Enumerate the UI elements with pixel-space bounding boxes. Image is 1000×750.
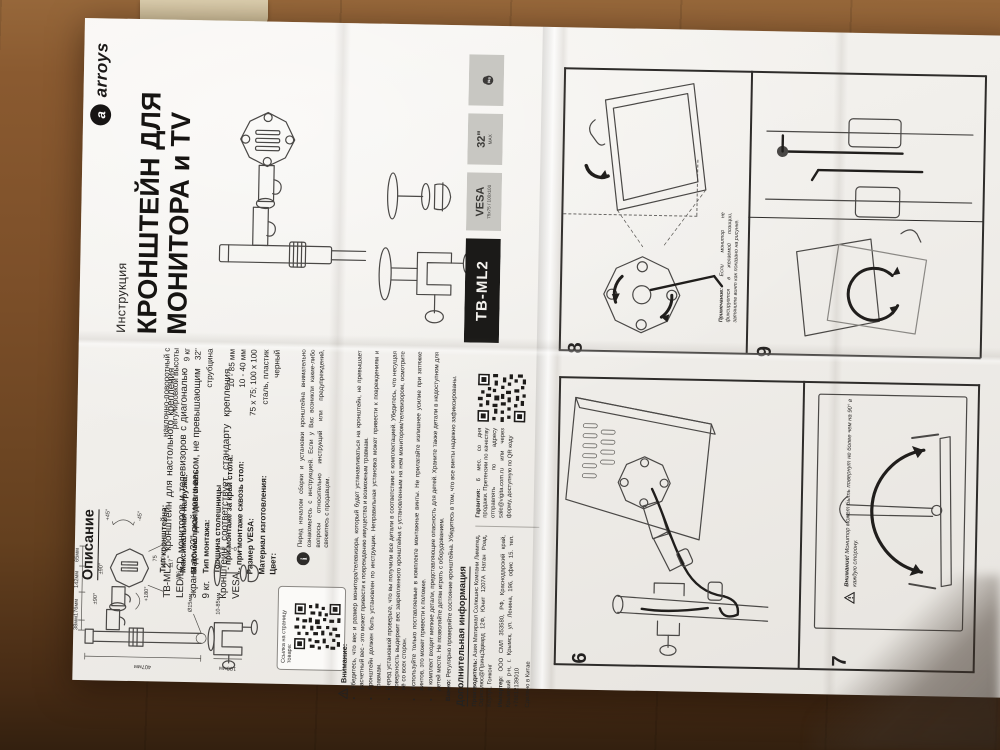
warnings-heading: Внимание: [339, 644, 349, 684]
assembly-note-text: Перед началом сборки и установки кронште… [297, 349, 343, 548]
svg-text:65мм: 65мм [75, 548, 81, 562]
step-9-illustration [749, 73, 986, 355]
svg-text:117: 117 [168, 559, 174, 568]
product-qr-box: Ссылка на страницу товара: [277, 586, 347, 671]
svg-text:407мм: 407мм [134, 663, 151, 669]
spec-value: сталь, пластик [259, 348, 270, 443]
spec-value: 10 - 40 мм [237, 348, 248, 443]
brand-wordmark: arroys [91, 42, 112, 97]
weight-badge: 9kg [468, 54, 504, 106]
svg-text:10-40мм: 10-40мм [218, 545, 240, 551]
svg-text:+45°: +45° [105, 509, 111, 521]
size-badge: 32" MAX [467, 113, 503, 165]
svg-text:+180°: +180° [144, 586, 150, 601]
svg-text:100: 100 [161, 556, 167, 565]
svg-text:142мм: 142мм [74, 571, 80, 588]
page-title: КРОНШТЕЙН ДЛЯ МОНИТОРА и TV [133, 29, 198, 347]
svg-text:176мм: 176мм [74, 599, 80, 616]
spec-value: 32" [192, 347, 203, 442]
manufacturer-info: Производитель: Азия Матириал Солюшнс Ком… [471, 535, 498, 707]
warranty-label: Гарантия: [475, 489, 482, 518]
vesa-badge: VESA 75x75 / 100x100 [466, 172, 502, 231]
cover-product-illustration [204, 52, 560, 354]
size-badge-sub: MAX [489, 134, 494, 144]
arroys-logo-icon: a [90, 104, 111, 125]
assembly-note: i Перед началом сборки и установки кронш… [297, 349, 343, 566]
page-title-line2: МОНИТОРА и TV [163, 30, 199, 336]
spec-value: 10 - 85 мм [226, 348, 237, 443]
photo-corner-shadow [810, 575, 1000, 750]
spec-value: черный [271, 349, 282, 444]
importer-label: Импортер: [498, 676, 505, 707]
importer-info: Импортер: ООО СМЛ 353580, РФ, Краснодарс… [498, 535, 525, 707]
dimension-drawing: +45° -45° 75 100 117 116 +180° ±90° ±90°… [50, 507, 303, 674]
spec-value: 75 x 75; 100 x 100 [248, 348, 259, 443]
svg-text:75: 75 [153, 555, 159, 561]
photo-of-instruction-leaflet: { "cover": { "brand": "arroys", "brand_i… [0, 0, 1000, 750]
svg-text:±90°: ±90° [93, 593, 99, 605]
svg-text:-45°: -45° [137, 511, 143, 521]
made-in-label: Сделано в Китае [525, 536, 536, 708]
brand-logo: a arroys [82, 28, 113, 345]
cover-text-block: a arroys Инструкция КРОНШТЕЙН ДЛЯ МОНИТО… [82, 28, 210, 347]
vesa-badge-label: VESA [475, 187, 487, 217]
warranty-qr-code [477, 374, 526, 423]
step-8-note: Примечание: Если монитор не фиксируется … [718, 212, 748, 323]
step-7-warning: Внимание! Монитор может быть повернут не… [844, 390, 882, 605]
spec-value: 9 кг [181, 347, 192, 442]
svg-text:100мм: 100мм [219, 665, 236, 671]
svg-text:9kg: 9kg [487, 77, 491, 83]
svg-text:±90°: ±90° [98, 563, 104, 575]
additional-info-block: Дополнительная информация Производитель:… [450, 347, 561, 708]
svg-text:38мм: 38мм [73, 616, 79, 630]
step-6-illustration [557, 379, 802, 666]
svg-text:116: 116 [176, 571, 182, 580]
step-8-note-label: Примечание: [718, 288, 725, 322]
kettlebell-icon: 9kg [479, 73, 494, 88]
spec-value: струбцина [203, 347, 214, 442]
svg-text:10-85мм: 10-85мм [216, 592, 222, 614]
manufacturer-label: Производитель: [471, 659, 478, 707]
size-badge-label: 32" [476, 130, 488, 148]
cover-badges: TB-ML2 VESA 75x75 / 100x100 32" MAX 9kg [464, 52, 505, 343]
vesa-badge-sub: 75x75 / 100x100 [488, 185, 493, 219]
svg-text:Ø15мм: Ø15мм [188, 594, 194, 613]
spec-value: наклонно-поворотный с регулировкой высот… [161, 347, 181, 442]
doc-type-label: Инструкция [114, 29, 134, 346]
additional-info-heading: Дополнительная информация [455, 566, 470, 706]
info-icon: i [297, 552, 310, 565]
warnings-block: Внимание: Убедитесь, что вес и размер мо… [338, 350, 461, 701]
warning-triangle-icon [338, 688, 348, 699]
spec-value [215, 348, 226, 443]
warranty-info: Гарантия: 6 мес. со дня продажи. Претенз… [475, 428, 541, 519]
model-badge: TB-ML2 [464, 238, 501, 343]
product-qr-code [294, 603, 341, 650]
